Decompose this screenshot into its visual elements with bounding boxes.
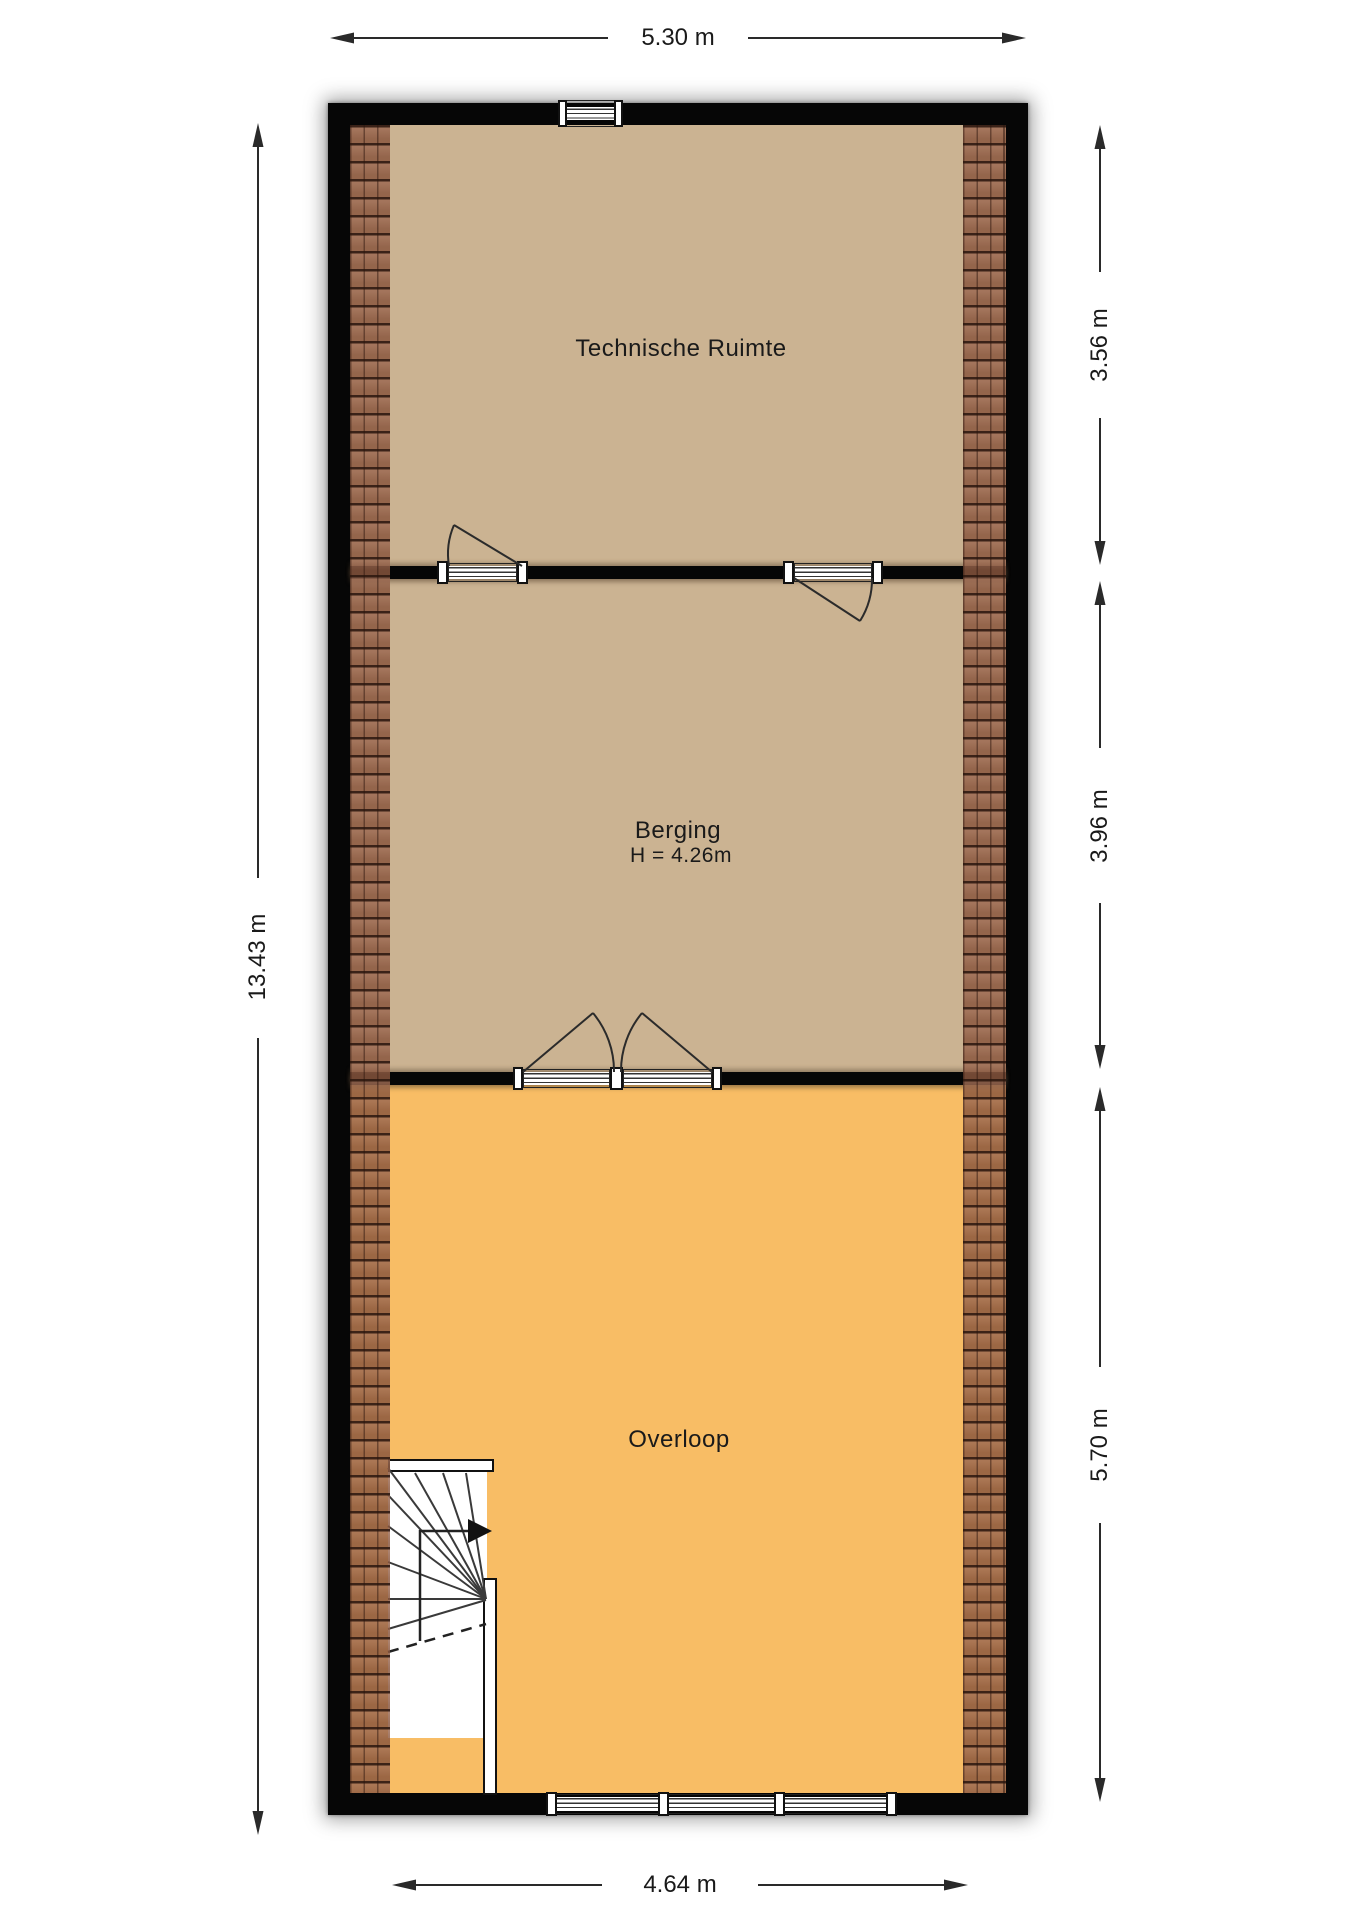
door-post-icon (517, 561, 528, 584)
window-post-icon (886, 1792, 897, 1816)
door-post-icon (437, 561, 448, 584)
window-post-icon (774, 1792, 785, 1816)
stair-top-rail (388, 1459, 494, 1472)
window-post-icon (658, 1792, 669, 1816)
door-panel-icon (794, 563, 872, 582)
window-icon (546, 1794, 897, 1814)
door-post-icon (872, 561, 883, 584)
stair-side-rail (483, 1578, 497, 1795)
door-post-icon (712, 1067, 722, 1090)
room-label-overloop: Overloop (628, 1426, 729, 1454)
double-door-left-panel-icon (523, 1069, 610, 1088)
window-post-icon (614, 100, 623, 127)
dimension-label-right-2: 3.96 m (1086, 783, 1114, 868)
window-post-icon (558, 100, 567, 127)
room-height-label: H = 4.26m (630, 844, 732, 868)
dimension-label-left: 13.43 m (244, 908, 272, 1007)
room-label-berging: Berging (635, 817, 721, 845)
door-post-icon (783, 561, 794, 584)
dimension-label-bottom: 4.64 m (637, 1871, 722, 1899)
dimension-label-right-1: 3.56 m (1086, 302, 1114, 387)
double-door-right-panel-icon (623, 1069, 712, 1088)
room-label-technische-ruimte: Technische Ruimte (575, 335, 786, 363)
dimension-label-right-3: 5.70 m (1086, 1402, 1114, 1487)
staircase (388, 1462, 487, 1738)
door-post-icon (610, 1067, 623, 1090)
window-post-icon (546, 1792, 557, 1816)
roof-tile-strip-left (350, 125, 390, 1793)
dimension-label-top: 5.30 m (635, 24, 720, 52)
door-panel-icon (448, 563, 517, 582)
door-post-icon (513, 1067, 523, 1090)
roof-tile-strip-right (963, 125, 1006, 1793)
